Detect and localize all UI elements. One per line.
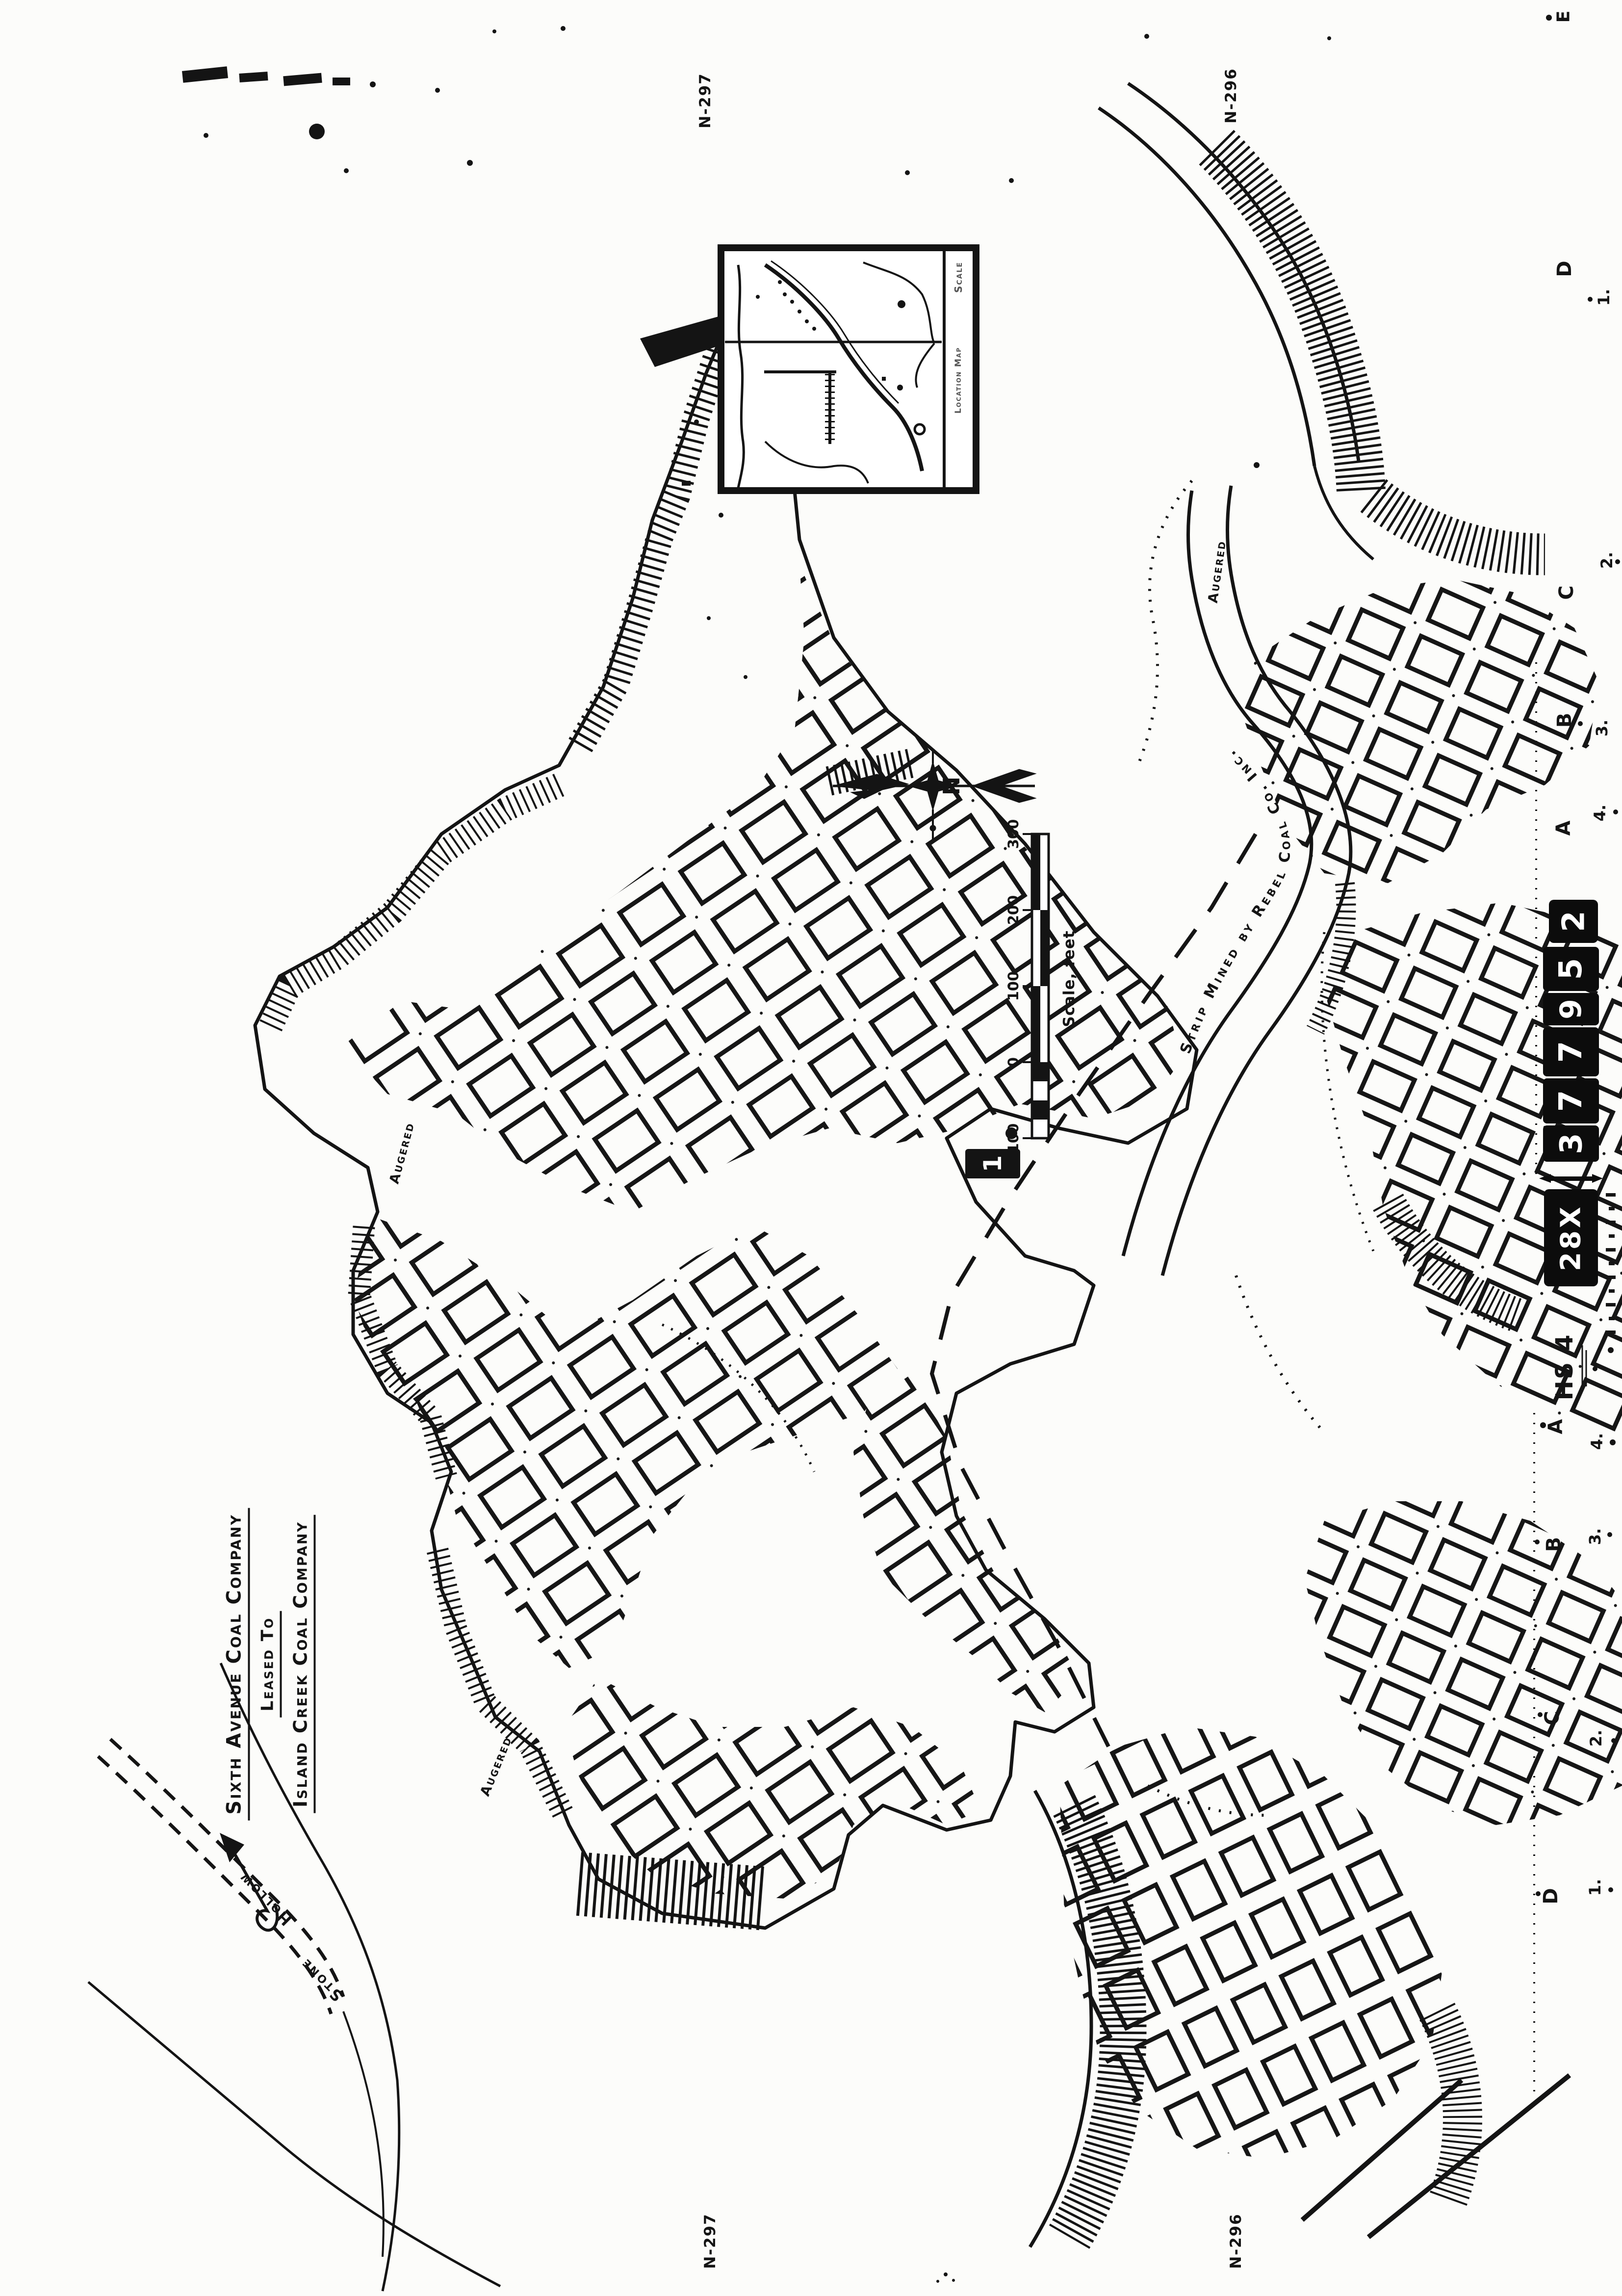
id-digit-7b: 7 (1553, 1041, 1589, 1063)
scale-tick-100: 100 (1005, 971, 1022, 1001)
grid-letter-b-bottom: B (1543, 1537, 1565, 1552)
title-owner: Sixth Avenue Coal Company (223, 1508, 250, 1820)
grid-number-2-top: 2. (1597, 552, 1616, 569)
mine-map-artwork: Strip Mined by Rebel Coal Co. Inc. (0, 0, 1622, 2296)
id-digit-5: 5 (1553, 958, 1589, 980)
grid-letter-d-bottom: D (1540, 1888, 1562, 1904)
inset-location-map-label: Location Map (953, 347, 963, 414)
grid-letter-b-top: B (1553, 713, 1576, 728)
sheet-ref-bottom-right: N-296 (1227, 2213, 1245, 2269)
index-number: 1 (978, 1155, 1007, 1173)
grid-number-1-top: 1. (1595, 289, 1613, 306)
sheet-ref-bottom-left: N-297 (701, 2213, 719, 2269)
grid-letter-c-top: C (1555, 585, 1578, 600)
scale-tick-0: 0 (1005, 1057, 1022, 1067)
inset-scale-label: Scale (953, 261, 964, 293)
id-suffix: 2 (1556, 911, 1592, 932)
grid-number-1-bottom: 1. (1586, 1879, 1604, 1896)
scale-tick-200: 200 (1005, 895, 1022, 925)
grid-letter-d-top: D (1553, 261, 1576, 277)
inset-location-map (721, 248, 976, 491)
hs-code: HS 4 (1551, 1333, 1578, 1401)
grid-number-3-top: 3. (1593, 720, 1611, 736)
scale-tick-300: 300 (1005, 819, 1022, 849)
grid-number-3-bottom: 3. (1586, 1528, 1604, 1545)
scale-caption: Scale, feet (1060, 930, 1078, 1027)
id-digit-3: 3 (1553, 1133, 1589, 1154)
title-lessee: Island Creek Coal Company (290, 1515, 316, 1813)
left-mine-workings (255, 313, 1197, 1928)
right-mine-workings (1030, 83, 1622, 2247)
id-digit-7a: 7 (1553, 1090, 1589, 1112)
edge-corner-letter: E (1554, 11, 1574, 23)
grid-number-4-top: 4. (1591, 805, 1609, 821)
sheet-ref-top-left: N-297 (696, 73, 714, 129)
map-title-block: Sixth Avenue Coal Company Leased To Isla… (223, 1508, 316, 1820)
grid-letter-a-top: A (1552, 821, 1575, 836)
grid-letter-a-bottom: A (1545, 1419, 1567, 1435)
id-digit-9: 9 (1554, 999, 1588, 1019)
title-leased-to: Leased To (258, 1611, 282, 1718)
grid-number-2-bottom: 2. (1587, 1730, 1605, 1747)
north-label: N (938, 777, 965, 796)
grid-number-4-bottom: 4. (1588, 1433, 1606, 1450)
scanned-mine-map-sheet: Strip Mined by Rebel Coal Co. Inc. Sixth… (0, 0, 1622, 2296)
id-prefix: 28X (1555, 1204, 1587, 1271)
sheet-ref-top-right: N-296 (1222, 68, 1240, 124)
scale-tick-100-left: 100 (1005, 1123, 1022, 1153)
grid-letter-c-bottom: C (1541, 1711, 1564, 1725)
